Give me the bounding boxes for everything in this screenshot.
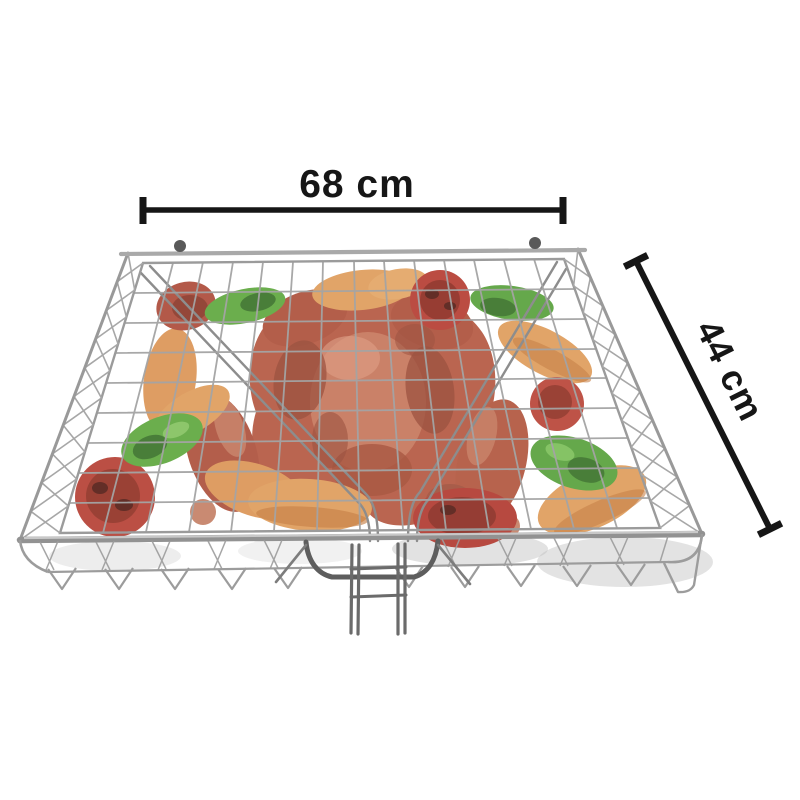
photo-fade-overlay (0, 0, 800, 680)
product-photo-page: 68 cm 44 cm (0, 0, 800, 800)
width-dimension-label: 68 cm (299, 163, 415, 206)
product-photo: 68 cm 44 cm (0, 0, 800, 800)
